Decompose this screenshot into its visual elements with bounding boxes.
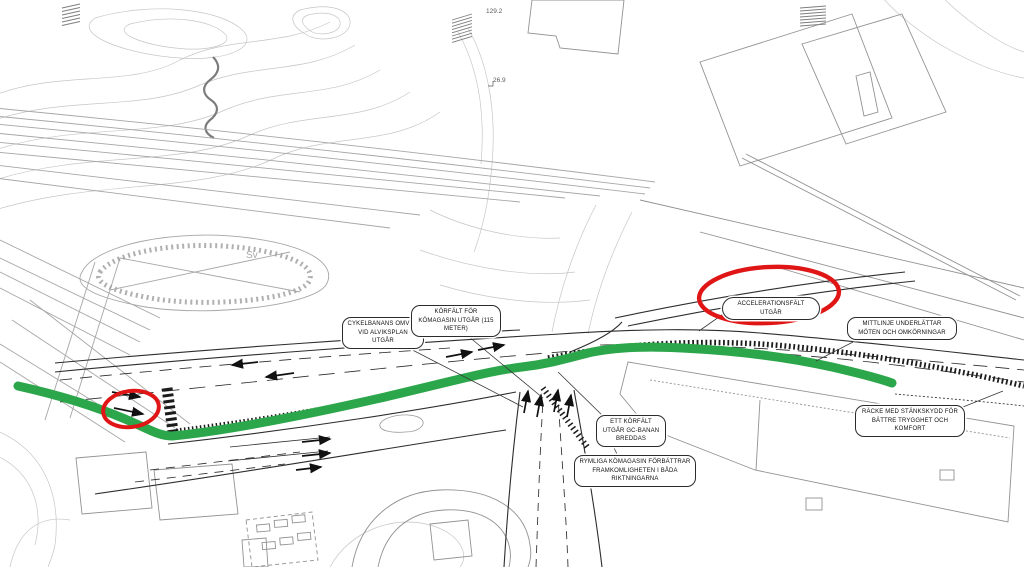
callout-mittlinje: MITTLINJE UNDERLÄTTAR MÖTEN OCH OMKÖRNIN… xyxy=(847,317,957,340)
road-plan-drawing: CYKELBANANS OMVÄG VID ALVIKSPLAN UTGÅR K… xyxy=(0,0,1024,567)
cycle-crossing xyxy=(543,388,588,448)
callout-korfalt-komagasin: KÖRFÄLT FÖR KÖMAGASIN UTGÅR (115 METER) xyxy=(411,305,501,337)
elevation-label-129-2: 129.2 xyxy=(486,8,502,15)
callout-ett-korfalt: ETT KÖRFÄLT UTGÅR GC-BANAN BREDDAS xyxy=(596,415,666,447)
callout-rymliga-komagasin: RYMLIGA KÖMAGASIN FÖRBÄTTRAR FRAMKOMLIGH… xyxy=(574,455,696,487)
callout-racke-stankskydd: RÄCKE MED STÄNKSKYDD FÖR BÄTTRE TRYGGHET… xyxy=(855,405,965,437)
railway-tracks xyxy=(0,108,655,311)
elevation-label-26-9: 26.9 xyxy=(493,77,506,84)
creek-line xyxy=(204,57,218,138)
contour-lines xyxy=(0,0,1024,567)
track-switch-label: Sv xyxy=(246,250,258,261)
plan-linework xyxy=(0,0,1024,567)
callout-accelerationsfalt: ACCELERATIONSFÄLT UTGÅR xyxy=(722,297,820,320)
